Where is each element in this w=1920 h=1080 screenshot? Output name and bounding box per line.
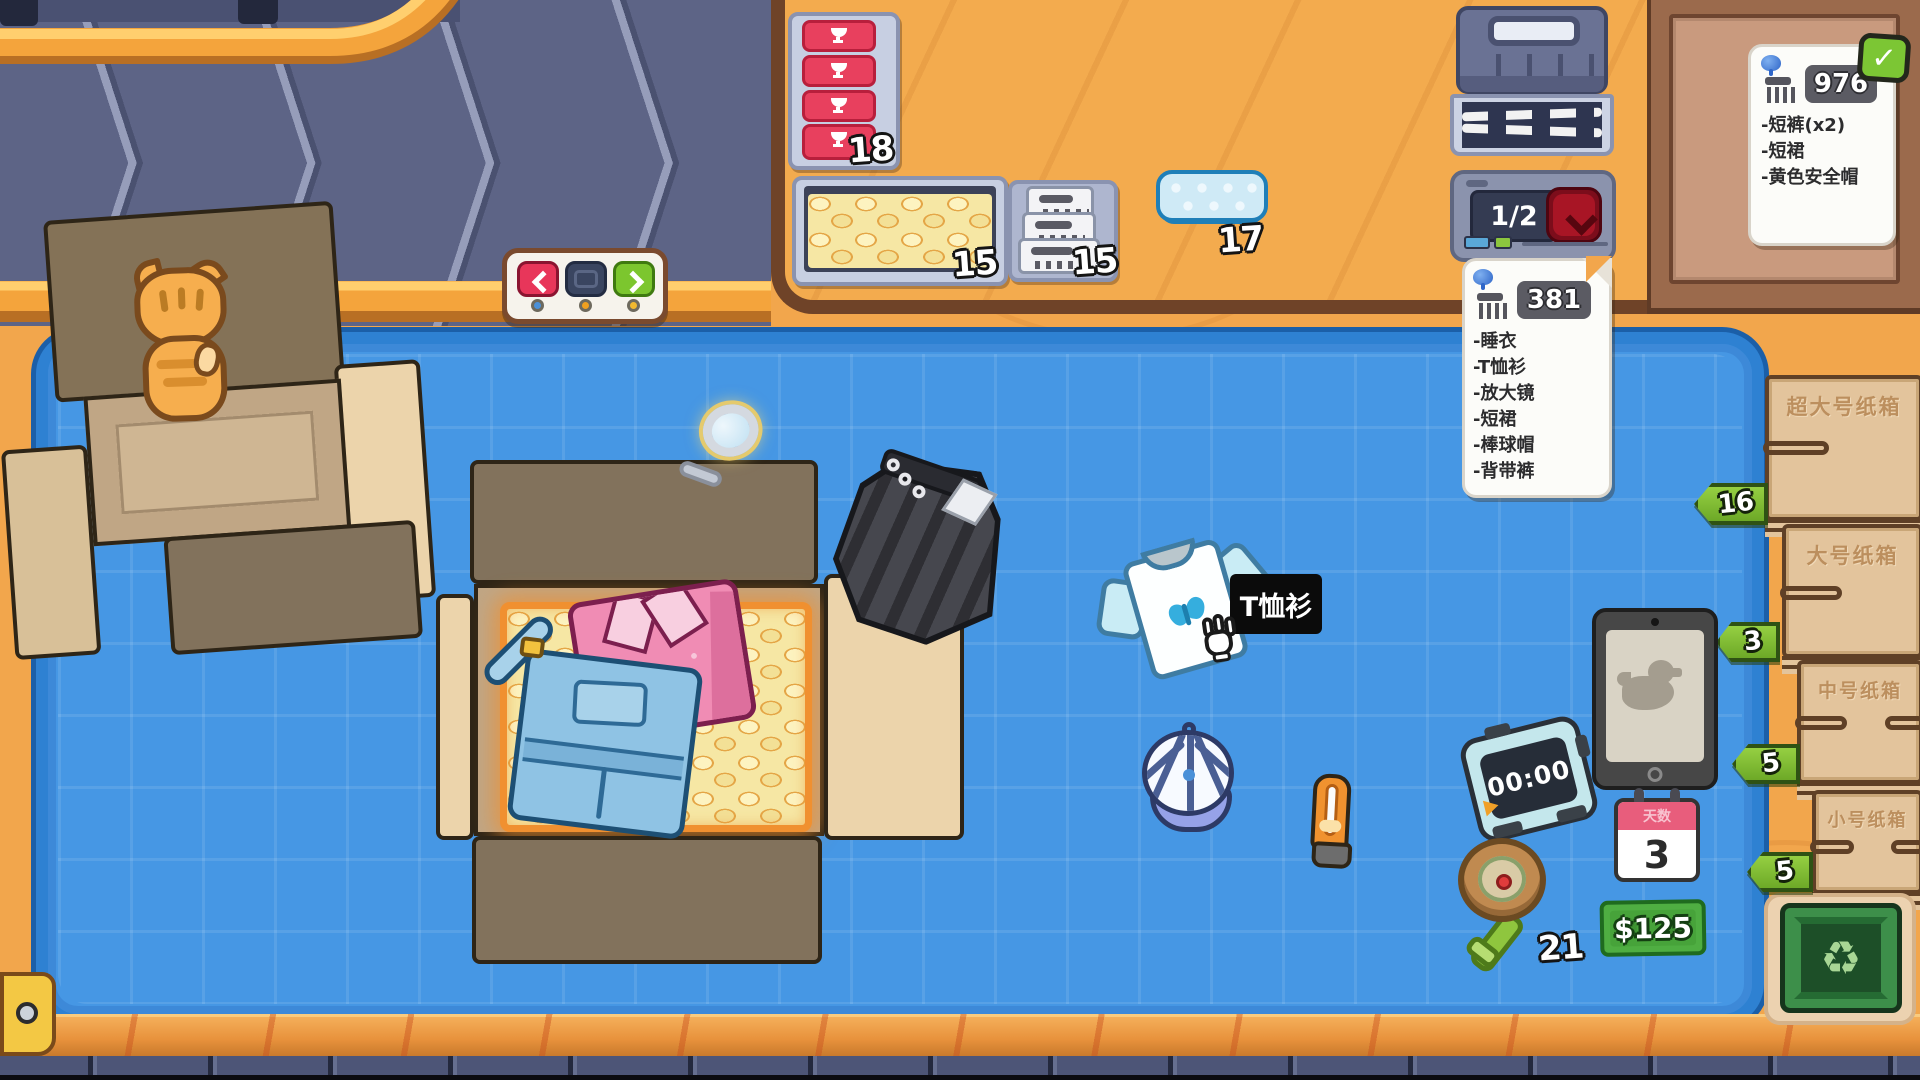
led-green — [1494, 236, 1512, 249]
handle-slot — [1795, 716, 1847, 730]
handle-slot — [1780, 586, 1842, 600]
trophy-icon — [831, 132, 847, 141]
nav-dot-blue — [531, 299, 544, 312]
thermometer-bulb — [1319, 819, 1342, 832]
order-item-list: -短裤(x2) -短裙 -黄色安全帽 — [1761, 113, 1858, 191]
chevron-right-icon — [622, 271, 645, 294]
handle-slot — [1891, 840, 1920, 854]
order-note-current: 381 -睡衣 -T恤衫 -放大镜 -短裙 -棒球帽 -背带裤 — [1462, 258, 1612, 498]
recycle-pad: ♻ — [1764, 893, 1916, 1025]
peanuts-count: 15 — [951, 242, 999, 285]
toy-center — [1496, 874, 1512, 890]
box-stack-xl[interactable]: 超大号纸箱 — [1765, 375, 1920, 521]
pager-line — [1522, 242, 1608, 246]
pushpin-icon — [1761, 55, 1781, 71]
tablet-camera — [1651, 618, 1659, 626]
shredder-ribs — [1470, 54, 1598, 76]
stack-count-tag: 5 — [1732, 744, 1800, 784]
page-flip-button[interactable] — [1546, 187, 1602, 243]
box-stack-medium[interactable]: 中号纸箱 — [1797, 660, 1920, 784]
item-tooltip: T恤衫 — [1230, 574, 1322, 634]
recycle-icon: ♻ — [1820, 931, 1861, 985]
nav-dot-orange — [579, 299, 592, 312]
corner-bracket — [0, 972, 56, 1056]
shredder-window — [1462, 102, 1602, 148]
calendar-header: 天数 — [1618, 802, 1696, 830]
shredder-lip — [1460, 76, 1604, 92]
pager-slot — [1466, 180, 1488, 187]
order-item-list: -睡衣 -T恤衫 -放大镜 -短裙 -棒球帽 -背带裤 — [1473, 329, 1534, 486]
paper-shredder-body[interactable] — [1450, 94, 1614, 156]
order-item: -短裤(x2) — [1761, 113, 1858, 139]
money-bill[interactable]: $125 — [1600, 899, 1707, 957]
trophy-icon — [831, 98, 847, 107]
paper-count: 15 — [1071, 240, 1119, 283]
nav-dot-yellow — [627, 299, 640, 312]
paper-shredder-top[interactable] — [1456, 6, 1608, 94]
box-stack-label: 超大号纸箱 — [1769, 391, 1919, 421]
gift-box — [802, 90, 876, 122]
box-stack-small[interactable]: 小号纸箱 — [1812, 790, 1920, 894]
order-pager-panel: 1/2 — [1450, 170, 1616, 262]
thermometer-item[interactable] — [1310, 773, 1352, 851]
order-item: -短裙 — [1473, 407, 1534, 433]
chevron-down-icon — [1565, 203, 1598, 236]
toy-count: 21 — [1537, 926, 1585, 969]
box-flap-bottom — [163, 520, 423, 655]
toy-ring — [1458, 838, 1546, 922]
barcode-icon — [1477, 293, 1511, 319]
stack-count-tag: 3 — [1716, 622, 1780, 662]
pushpin-icon — [1473, 269, 1493, 285]
led-blue — [1464, 236, 1490, 249]
order-item: -睡衣 — [1473, 329, 1534, 355]
stack-count-tag: 5 — [1747, 852, 1813, 892]
order-item: -棒球帽 — [1473, 433, 1534, 459]
box-flap-bottom — [472, 836, 822, 964]
overalls-buckle — [519, 636, 545, 659]
completed-check-badge: ✓ — [1856, 32, 1911, 84]
order-item: -背带裤 — [1473, 459, 1534, 485]
trophy-icon — [831, 28, 847, 37]
overalls-pocket — [572, 679, 648, 727]
screen-bottom-line — [0, 1075, 1920, 1080]
pager-page-display: 1/2 — [1470, 190, 1558, 242]
box-stack-label: 大号纸箱 — [1786, 540, 1919, 570]
shredder-handle — [1488, 16, 1580, 46]
recycle-bin-floor: ♻ — [1801, 924, 1881, 992]
tablet-home-button — [1648, 767, 1663, 782]
barcode-icon — [1765, 77, 1799, 103]
box-interior-floor — [115, 411, 319, 515]
calendar-day-number: 3 — [1618, 832, 1696, 878]
handle-slot — [1810, 840, 1854, 854]
order-points: 381 — [1517, 281, 1591, 319]
duck-logo — [1622, 660, 1682, 712]
cat-box[interactable] — [13, 192, 433, 666]
chevron-left-icon — [532, 271, 555, 294]
current-station-button[interactable] — [565, 261, 607, 297]
floor-plinth — [0, 1056, 1920, 1075]
box-flap-left — [1, 445, 101, 660]
page-flip-button-face — [1553, 194, 1595, 236]
hand-cursor — [1195, 611, 1243, 662]
packing-box-open[interactable] — [458, 452, 898, 972]
box-flap-left — [436, 594, 474, 840]
order-item: -T恤衫 — [1473, 355, 1534, 381]
prev-station-button[interactable] — [517, 261, 559, 297]
bubble-wrap[interactable] — [1156, 170, 1268, 222]
tablet-item[interactable] — [1592, 608, 1718, 790]
bubble-wrap-count: 17 — [1217, 218, 1265, 261]
stack-count-tag: 16 — [1694, 483, 1768, 525]
order-item: -黄色安全帽 — [1761, 165, 1858, 191]
cap-button — [1183, 769, 1195, 781]
thermometer-base — [1311, 841, 1352, 869]
gift-box — [802, 20, 876, 52]
overalls-seam — [596, 767, 607, 819]
recycle-bin[interactable]: ♻ — [1780, 903, 1902, 1013]
station-nav-panel — [502, 248, 668, 324]
box-stack-label: 小号纸箱 — [1816, 806, 1919, 832]
order-item: -短裙 — [1761, 139, 1858, 165]
box-stack-large[interactable]: 大号纸箱 — [1782, 524, 1920, 658]
shredded-paper — [1462, 108, 1602, 122]
shredded-paper — [1462, 124, 1602, 138]
cat[interactable] — [131, 255, 247, 419]
handle-slot — [1763, 441, 1829, 455]
square-icon — [574, 270, 598, 288]
handle-slot — [1885, 716, 1920, 730]
day-calendar[interactable]: 天数 3 — [1614, 798, 1700, 882]
box-stack-label: 中号纸箱 — [1801, 676, 1919, 703]
check-icon: ✓ — [1870, 40, 1898, 77]
trophy-icon — [831, 63, 847, 72]
table-front-edge — [0, 1014, 1920, 1056]
baseball-cap-item[interactable] — [1138, 722, 1238, 838]
screw-icon — [16, 1002, 38, 1024]
packing-game-scene: 18 15 15 17 1/2 — [0, 0, 1920, 1080]
order-item: -放大镜 — [1473, 381, 1534, 407]
skirt-item[interactable] — [818, 448, 1019, 655]
bill-value: $125 — [1604, 903, 1703, 953]
gift-box-count: 18 — [847, 128, 895, 171]
overalls-item[interactable] — [506, 648, 704, 840]
next-station-button[interactable] — [613, 261, 655, 297]
gift-box — [802, 55, 876, 87]
cap-dome — [1142, 730, 1234, 816]
